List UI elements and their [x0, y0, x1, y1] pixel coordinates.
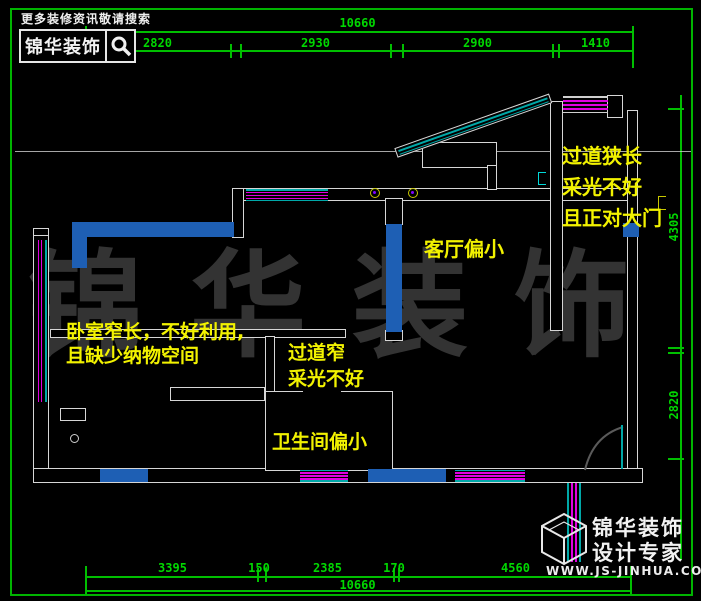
window-bottom-2-frame: [455, 470, 525, 472]
window-top-frame: [246, 200, 328, 202]
window-entry: [563, 108, 608, 110]
dim-tick: [85, 566, 87, 596]
window-left: [38, 240, 40, 402]
dim-tick: [668, 458, 684, 460]
dim-tick: [230, 44, 232, 58]
dim-top-4: 1410: [568, 36, 623, 50]
note-bedroom: 卧室窄长，不好利用, 且缺少纳物空间: [66, 320, 244, 368]
dim-bottom-4: 170: [372, 561, 416, 575]
note-line: 采光不好: [562, 172, 662, 203]
window-bottom-1: [300, 475, 348, 477]
wall-divider-cap-top: [385, 198, 403, 225]
dim-top-2: 2930: [288, 36, 343, 50]
promo-text: 更多装修资讯敬请搜索: [21, 10, 151, 27]
wall-corridor-left: [265, 336, 275, 393]
dim-top-total: 10660: [320, 16, 395, 30]
outlet-symbol: [370, 188, 380, 198]
note-living-room: 客厅偏小: [424, 233, 504, 262]
wall-corner-box: [607, 95, 623, 118]
dim-bottom-5: 4560: [488, 561, 543, 575]
blue-wall-divider: [386, 224, 402, 332]
window-entry-frame: [563, 112, 608, 114]
dim-bottom-3: 2385: [300, 561, 355, 575]
dim-tick: [668, 108, 684, 110]
window-left: [41, 240, 43, 402]
note-line: 过道窄: [288, 340, 364, 366]
blue-wall-bottom-1: [100, 469, 148, 482]
dim-tick: [402, 44, 404, 58]
blue-wall-bottom-2: [368, 469, 446, 482]
cyan-bracket-mark: [538, 172, 546, 185]
outlet-symbol: [408, 188, 418, 198]
note-bathroom: 卫生间偏小: [272, 427, 367, 454]
entry-door-leaf: [621, 425, 623, 469]
window-bottom-2: [455, 475, 525, 477]
note-line: 且正对大门: [562, 203, 662, 234]
window-top: [246, 195, 328, 197]
note-corridor: 过道窄 采光不好: [288, 340, 364, 392]
note-line: 采光不好: [288, 366, 364, 392]
wall-sill-box: [60, 408, 86, 421]
window-entry: [563, 100, 608, 102]
brand-label: 锦华装饰: [21, 31, 107, 61]
wall-flue-connector: [487, 165, 497, 190]
window-bottom-2: [455, 472, 525, 474]
dim-bottom-2: 150: [238, 561, 280, 575]
note-line: 且缺少纳物空间: [66, 344, 244, 368]
wall-flue-box: [422, 142, 497, 168]
dim-bottom-total: 10660: [320, 578, 395, 592]
window-bottom-1-frame: [300, 480, 348, 482]
fixture-circle: [70, 434, 79, 443]
dim-top-1: 2820: [130, 36, 185, 50]
dim-tick: [632, 26, 634, 68]
window-bottom-1: [300, 472, 348, 474]
footer-url: WWW.JS-JINHUA.COM: [546, 564, 701, 578]
window-top-frame: [246, 189, 328, 191]
window-entry: [563, 104, 608, 106]
blue-wall-bedroom-side: [72, 222, 87, 268]
dim-tick: [390, 44, 392, 58]
window-bottom-1-frame: [300, 470, 348, 472]
dim-bottom-1: 3395: [145, 561, 200, 575]
dim-line-top-total: [85, 31, 632, 33]
entry-door-swing-arc: [583, 424, 625, 472]
window-bottom-2-frame: [455, 480, 525, 482]
note-line: 卧室窄长，不好利用,: [66, 320, 244, 344]
search-box-graphic: 锦华装饰: [19, 29, 136, 63]
search-icon: [107, 31, 134, 61]
window-left-frame: [45, 240, 47, 402]
dim-tick: [552, 44, 554, 58]
dim-right-2: 2820: [667, 375, 681, 435]
note-entry-hall: 过道狭长 采光不好 且正对大门: [562, 141, 662, 234]
note-line: 过道狭长: [562, 141, 662, 172]
window-top: [246, 192, 328, 194]
dim-right-1: 4305: [667, 197, 681, 257]
footer-logo: [540, 512, 690, 567]
dim-tick: [240, 44, 242, 58]
wall-closet: [170, 387, 265, 401]
window-entry-frame: [563, 96, 608, 98]
cube-logo-icon: [540, 512, 588, 566]
dim-tick: [558, 44, 560, 58]
dim-line-top-segments: [85, 50, 632, 52]
dim-top-3: 2900: [450, 36, 505, 50]
cad-floorplan-canvas: 锦华装饰 更多装修资讯敬请搜索 锦华装饰 10660 2820 2930 290…: [0, 0, 701, 601]
blue-wall-bedroom-top: [72, 222, 234, 237]
